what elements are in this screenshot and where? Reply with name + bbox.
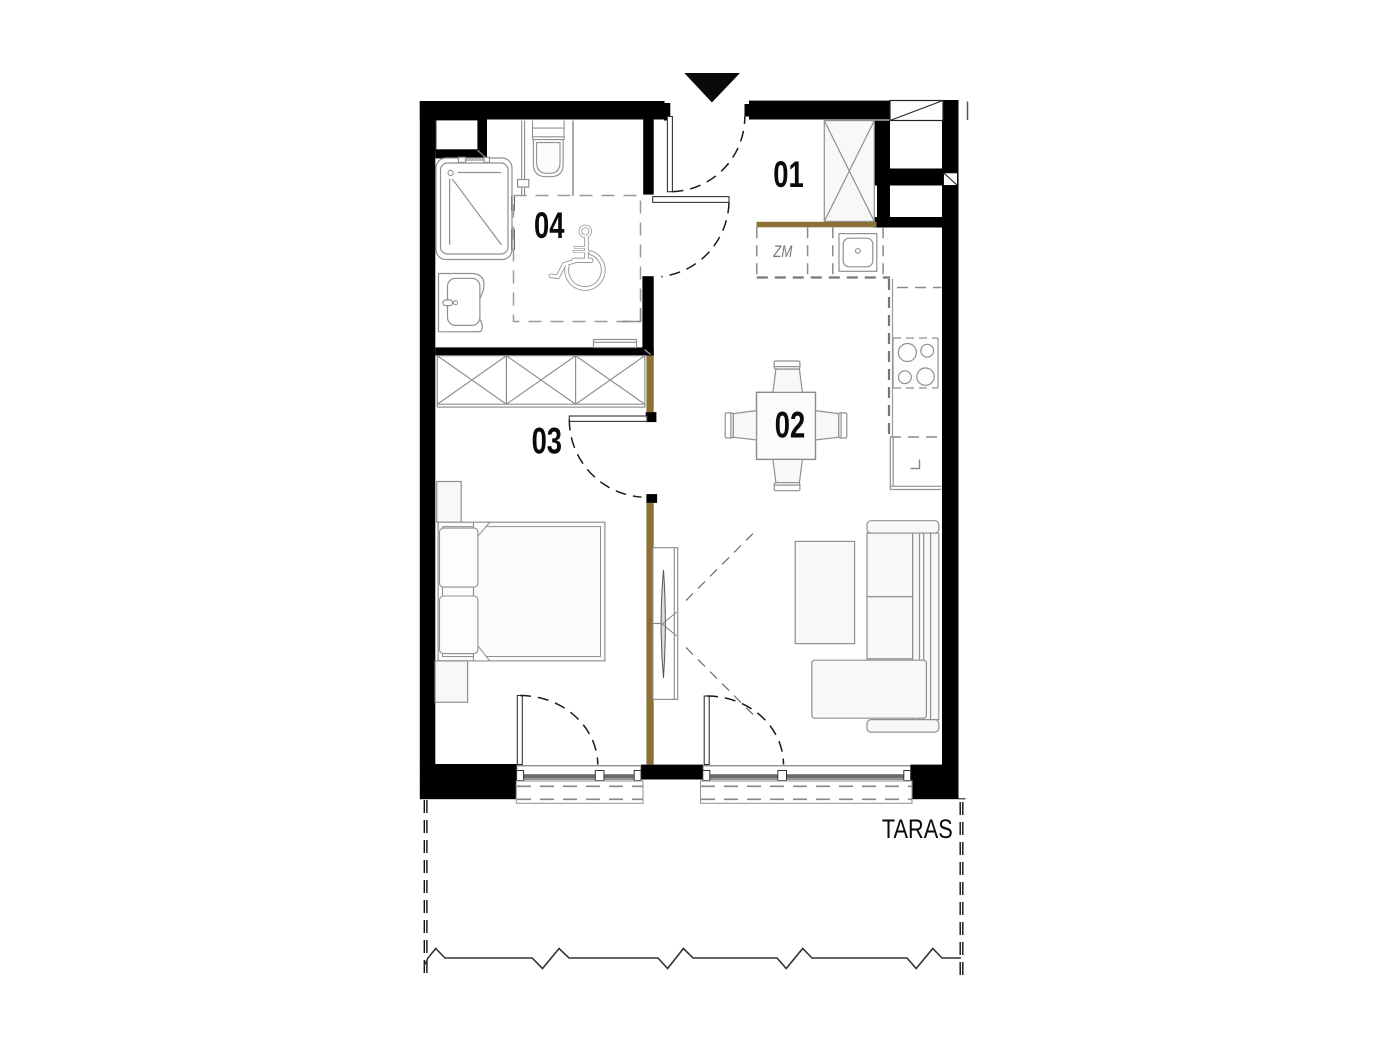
svg-text:04: 04 [534,205,564,246]
svg-text:02: 02 [775,405,805,446]
svg-text:03: 03 [532,420,562,461]
svg-text:TARAS: TARAS [882,815,953,845]
svg-text:01: 01 [773,154,803,195]
svg-text:ZM: ZM [772,243,792,262]
